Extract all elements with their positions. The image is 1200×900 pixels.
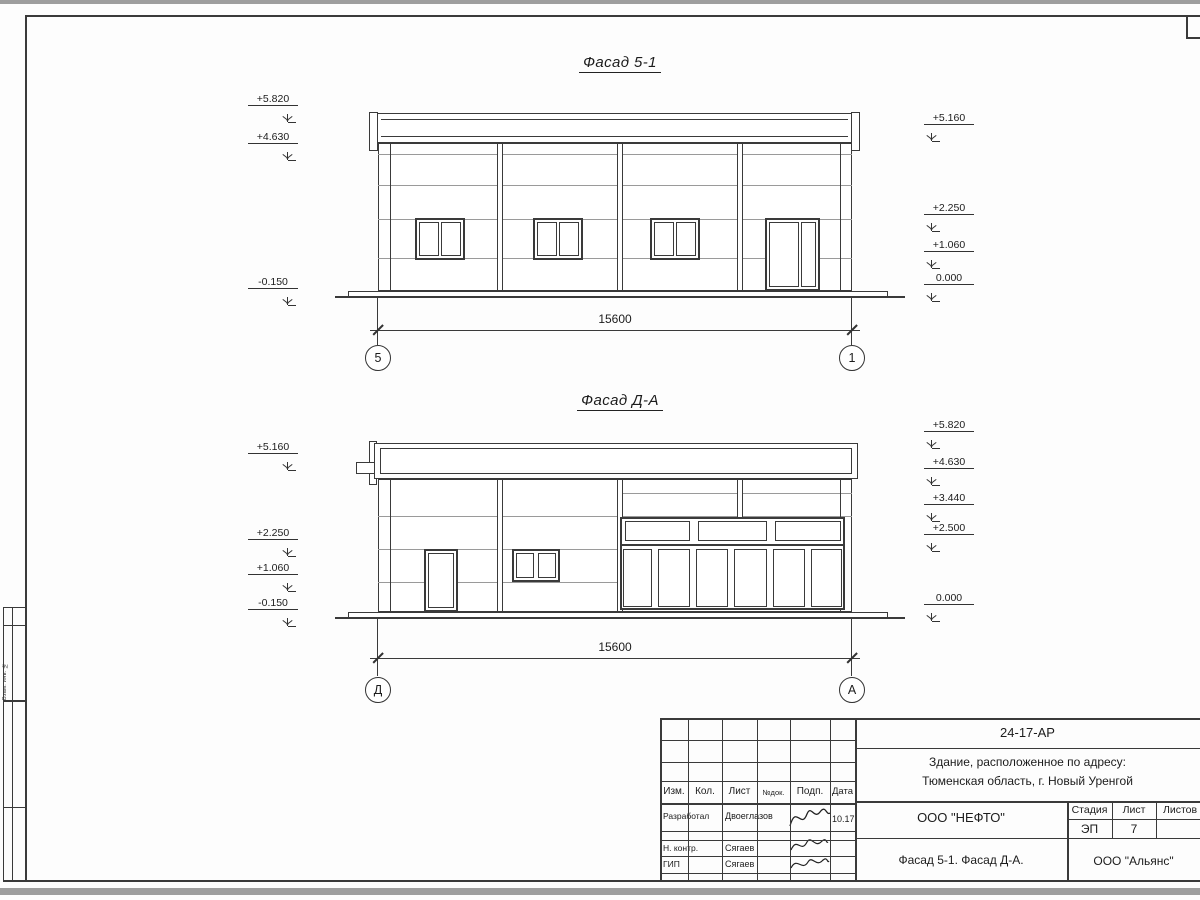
elevation-value: -0.150 [248, 597, 298, 609]
elevation-arrow-icon [282, 583, 294, 592]
col-izm: Изм. [660, 786, 688, 797]
titleblock-line [722, 718, 723, 882]
titleblock-line [660, 762, 855, 763]
elevation-arrow-icon [282, 548, 294, 557]
titleblock-line [1067, 801, 1069, 882]
elevation-mark: 0.000 [924, 270, 974, 293]
signature [786, 802, 832, 834]
elevation-value: -0.150 [248, 276, 298, 288]
glass-panel [734, 549, 767, 607]
elevation-arrow-icon [282, 462, 294, 471]
elevation-mark: +2.500 [924, 520, 974, 543]
signboard-inner [380, 448, 852, 474]
project-address-line2: Тюменская область, г. Новый Уренгой [855, 774, 1200, 788]
titleblock-line [660, 803, 857, 805]
frame-bottom-line [3, 880, 1200, 882]
titleblock-line [660, 873, 855, 874]
titleblock-line [660, 856, 855, 857]
col-ndok: №док. [757, 788, 790, 797]
row-role: Н. контр. [663, 843, 698, 853]
col-data: Дата [830, 786, 855, 797]
elevation-value: +3.440 [924, 492, 974, 504]
elevation-arrow-icon [926, 223, 938, 232]
facade1-title: Фасад 5-1 [540, 54, 700, 71]
elevation-value: +1.060 [248, 562, 298, 574]
company-name: ООО "НЕФТО" [855, 810, 1067, 825]
glass-panel [698, 521, 767, 541]
glass-panel [773, 549, 805, 607]
side-strip-divider [3, 625, 26, 626]
door-leaf [801, 222, 816, 287]
titleblock-line [1156, 801, 1157, 838]
elevation-line [248, 143, 298, 144]
elevation-line [924, 214, 974, 215]
row-name: Сягаев [725, 859, 754, 869]
glass-panel [775, 521, 841, 541]
sheets-label: Листов [1156, 804, 1200, 816]
contractor-name: ООО "Альянс" [1067, 854, 1200, 868]
storefront-transom-line [620, 544, 845, 546]
titleblock-line [855, 748, 1200, 749]
sheet-value: 7 [1112, 822, 1156, 836]
elevation-arrow-icon [282, 114, 294, 123]
extension-line [377, 297, 378, 345]
frame-notch-horizontal [1186, 37, 1200, 39]
elevation-value: +5.160 [248, 441, 298, 453]
row-role: Разработал [663, 811, 709, 821]
ground-line [335, 296, 905, 298]
titleblock-line [660, 718, 1200, 720]
elevation-line [248, 609, 298, 610]
elevation-arrow-icon [926, 440, 938, 449]
pilaster [497, 143, 503, 291]
titleblock-line [855, 838, 1200, 839]
pilaster [617, 143, 623, 291]
ground-line [335, 617, 905, 619]
elevation-arrow-icon [926, 543, 938, 552]
elevation-value: 0.000 [924, 592, 974, 604]
wall-joint-line [378, 154, 852, 155]
col-list: Лист [722, 786, 757, 797]
elevation-mark: +3.440 [924, 490, 974, 513]
elevation-mark: +1.060 [248, 560, 298, 583]
axis-circle-a: А [839, 677, 865, 703]
fascia-inner-line [381, 119, 848, 120]
elevation-line [924, 251, 974, 252]
row-date: 10.17 [832, 814, 855, 824]
pilaster-line [390, 143, 391, 291]
row-role: ГИП [663, 859, 680, 869]
elevation-value: +2.500 [924, 522, 974, 534]
axis-circle-d: Д [365, 677, 391, 703]
sheet-label: Лист [1112, 804, 1156, 816]
window-sash [538, 553, 556, 578]
facade1-dimension-label: 15600 [515, 312, 715, 326]
glass-panel [658, 549, 690, 607]
titleblock-line [855, 718, 857, 882]
window-sash [441, 222, 461, 256]
door-leaf [428, 553, 454, 608]
glass-panel [811, 549, 842, 607]
extension-line [851, 618, 852, 676]
wall-joint-line [378, 185, 852, 186]
side-strip-divider [3, 700, 26, 702]
window-sash [516, 553, 534, 578]
top-gray-bar [0, 0, 1200, 4]
elevation-line [248, 539, 298, 540]
elevation-line [924, 124, 974, 125]
frame-top-line [25, 15, 1200, 17]
col-podp: Подп. [790, 786, 830, 797]
side-strip-divider [3, 607, 26, 608]
titleblock-line [855, 801, 1200, 803]
project-address-line1: Здание, расположенное по адресу: [855, 755, 1200, 769]
window-sash [537, 222, 557, 256]
titleblock-line [660, 718, 662, 882]
dimension-line [370, 330, 860, 331]
elevation-mark: +5.820 [924, 417, 974, 440]
frame-notch-vertical [1186, 15, 1188, 39]
window-sash [419, 222, 439, 256]
elevation-value: +5.160 [924, 112, 974, 124]
elevation-value: +5.820 [248, 93, 298, 105]
elevation-arrow-icon [282, 618, 294, 627]
pilaster [497, 479, 503, 612]
axis-circle-1: 1 [839, 345, 865, 371]
titleblock-line [660, 840, 855, 841]
stage-label: Стадия [1067, 804, 1112, 816]
fascia-inner-line [381, 136, 848, 137]
elevation-arrow-icon [282, 297, 294, 306]
titleblock-line [830, 718, 831, 882]
window-sash [559, 222, 579, 256]
corner-post [851, 112, 860, 151]
titleblock-line [660, 740, 855, 741]
elevation-mark: +5.820 [248, 91, 298, 114]
elevation-line [248, 288, 298, 289]
elevation-line [924, 504, 974, 505]
elevation-value: +5.820 [924, 419, 974, 431]
doc-number: 24-17-АР [855, 725, 1200, 740]
elevation-arrow-icon [926, 133, 938, 142]
elevation-mark: -0.150 [248, 274, 298, 297]
elevation-arrow-icon [282, 152, 294, 161]
elevation-line [248, 453, 298, 454]
extension-line [851, 297, 852, 345]
axis-circle-5: 5 [365, 345, 391, 371]
elevation-arrow-icon [926, 293, 938, 302]
glass-panel [625, 521, 690, 541]
pilaster [737, 143, 743, 291]
elevation-arrow-icon [926, 260, 938, 269]
elevation-arrow-icon [926, 613, 938, 622]
bottom-gray-bar [0, 888, 1200, 895]
elevation-line [248, 574, 298, 575]
titleblock-line [790, 718, 791, 882]
elevation-value: +2.250 [924, 202, 974, 214]
elevation-mark: +4.630 [924, 454, 974, 477]
glass-panel [623, 549, 652, 607]
elevation-mark: 0.000 [924, 590, 974, 613]
elevation-arrow-icon [926, 477, 938, 486]
dimension-line [370, 658, 860, 659]
titleblock-line [757, 718, 758, 882]
titleblock-line [688, 718, 689, 882]
titleblock-line [660, 781, 855, 782]
elevation-mark: -0.150 [248, 595, 298, 618]
sheet-title: Фасад 5-1. Фасад Д-А. [855, 853, 1067, 867]
elevation-line [924, 468, 974, 469]
stage-value: ЭП [1067, 822, 1112, 836]
pilaster-line [390, 479, 391, 612]
elevation-value: +2.250 [248, 527, 298, 539]
frame-left-line [25, 15, 27, 882]
elevation-value: +4.630 [924, 456, 974, 468]
elevation-mark: +5.160 [924, 110, 974, 133]
elevation-mark: +5.160 [248, 439, 298, 462]
facade2-title: Фасад Д-А [540, 392, 700, 409]
pilaster [737, 479, 743, 519]
elevation-value: +1.060 [924, 239, 974, 251]
elevation-value: +4.630 [248, 131, 298, 143]
elevation-mark: +4.630 [248, 129, 298, 152]
side-strip-line [12, 607, 13, 881]
elevation-line [924, 604, 974, 605]
titleblock-line [1112, 801, 1113, 838]
pilaster-line [840, 143, 841, 291]
door-leaf [769, 222, 799, 287]
window-sash [654, 222, 674, 256]
col-kol: Кол. [688, 786, 722, 797]
wall-joint-line [617, 493, 852, 494]
elevation-mark: +1.060 [924, 237, 974, 260]
elevation-line [924, 534, 974, 535]
elevation-value: 0.000 [924, 272, 974, 284]
elevation-line [924, 431, 974, 432]
titleblock-line [660, 831, 855, 832]
elevation-line [924, 284, 974, 285]
fascia-band [377, 113, 852, 143]
row-name: Двоеглазов [725, 811, 773, 821]
row-name: Сягаев [725, 843, 754, 853]
glass-panel [696, 549, 728, 607]
side-strip-divider [3, 807, 26, 808]
elevation-mark: +2.250 [248, 525, 298, 548]
facade2-dimension-label: 15600 [515, 640, 715, 654]
titleblock-line [1067, 819, 1200, 820]
window-sash [676, 222, 696, 256]
extension-line [377, 618, 378, 676]
elevation-mark: +2.250 [924, 200, 974, 223]
drawing-sheet: Фасад 5-1 Фасад Д-А 15600 15600 5 1 Д А … [0, 0, 1200, 900]
side-strip-line [3, 607, 4, 881]
elevation-line [248, 105, 298, 106]
